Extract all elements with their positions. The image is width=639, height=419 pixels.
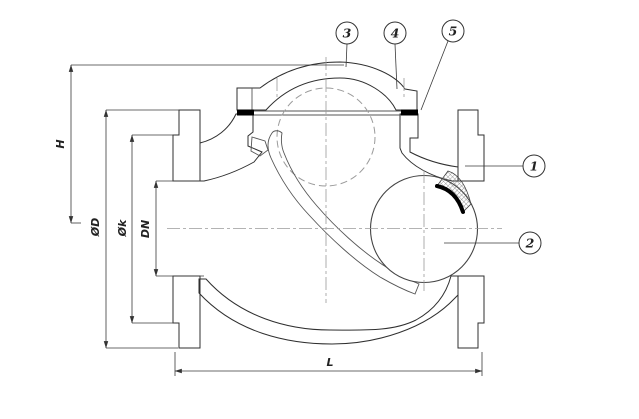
balloon-3-leader (346, 44, 347, 67)
dimension-H: H (54, 65, 344, 223)
balloon-4-label: 4 (391, 26, 400, 41)
balloon-5-leader (421, 41, 448, 110)
body-belly (199, 276, 458, 344)
balloon-1-label: 1 (530, 159, 539, 174)
dimension-L-label: L (326, 356, 333, 369)
dimension-Ok-label: Øk (116, 219, 129, 237)
dimension-L: L (175, 352, 482, 376)
gasket-seal-right (401, 110, 418, 116)
right-flange-upper (458, 110, 484, 181)
balloon-4-leader (395, 44, 397, 89)
balloon-3-label: 3 (343, 26, 352, 41)
hinge-boss (251, 137, 268, 156)
balloon-1: 1 (465, 155, 545, 177)
left-flange-lower (173, 276, 200, 348)
body-wall-upper-left (200, 114, 262, 181)
gasket-seal-left (237, 110, 254, 116)
bonnet-cover (237, 62, 417, 110)
balloon-5-label: 5 (449, 24, 458, 39)
dimension-DN-label: DN (139, 220, 152, 238)
balloon-5: 5 (421, 20, 464, 110)
dimension-OD-label: ØD (89, 218, 102, 237)
dimension-OD: ØD (89, 110, 179, 348)
right-flange-lower (458, 276, 484, 348)
balloon-2-label: 2 (525, 236, 535, 251)
dimension-H-label: H (54, 139, 67, 148)
balloon-3: 3 (336, 22, 358, 67)
drawing-canvas: H ØD Øk DN L 1 2 3 (0, 0, 639, 419)
body-wall-upper-right (400, 114, 458, 181)
valve-section-drawing: H ØD Øk DN L 1 2 3 (0, 0, 639, 419)
left-flange-upper (173, 110, 200, 181)
